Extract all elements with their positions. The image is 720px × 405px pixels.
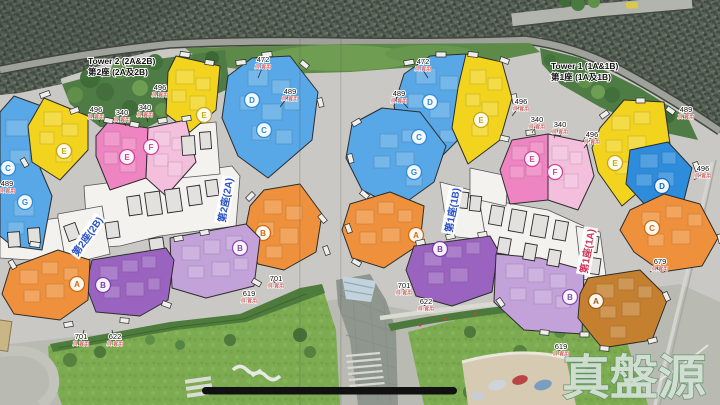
svg-text:呉 實用: 呉 實用 — [678, 114, 694, 121]
svg-text:呉 實用: 呉 實用 — [73, 341, 89, 348]
svg-text:D: D — [427, 98, 433, 107]
svg-text:C: C — [649, 224, 655, 233]
svg-text:呉 實用: 呉 實用 — [513, 106, 529, 113]
svg-text:701: 701 — [398, 281, 411, 290]
svg-text:呉 實用: 呉 實用 — [695, 173, 711, 180]
svg-text:Tower 1 (1A&1B): Tower 1 (1A&1B) — [551, 61, 619, 71]
svg-text:呉 實用: 呉 實用 — [415, 66, 431, 73]
svg-text:Tower 2 (2A&2B): Tower 2 (2A&2B) — [88, 56, 156, 66]
svg-text:619: 619 — [243, 289, 256, 298]
svg-text:E: E — [124, 153, 130, 162]
svg-text:E: E — [478, 116, 484, 125]
svg-text:A: A — [413, 231, 419, 240]
svg-text:622: 622 — [420, 297, 433, 306]
svg-text:496: 496 — [515, 97, 528, 106]
svg-text:496: 496 — [586, 130, 599, 139]
svg-text:呉 實用: 呉 實用 — [107, 341, 123, 348]
svg-text:B: B — [567, 293, 573, 302]
svg-text:D: D — [659, 182, 665, 191]
svg-text:B: B — [437, 245, 443, 254]
svg-text:呉 實用: 呉 實用 — [391, 98, 407, 105]
svg-text:E: E — [201, 111, 207, 120]
svg-text:呉 實用: 呉 實用 — [255, 64, 271, 71]
svg-text:呉 實用: 呉 實用 — [114, 117, 130, 124]
svg-text:496: 496 — [90, 105, 103, 114]
svg-text:B: B — [100, 281, 106, 290]
svg-text:呉 實用: 呉 實用 — [584, 139, 600, 146]
svg-text:G: G — [22, 198, 28, 207]
svg-text:340: 340 — [116, 108, 129, 117]
svg-text:呉 實用: 呉 實用 — [652, 266, 668, 273]
svg-text:496: 496 — [154, 83, 167, 92]
svg-text:呉 實用: 呉 實用 — [268, 283, 284, 290]
svg-text:呉 實用: 呉 實用 — [418, 306, 434, 313]
svg-text:A: A — [593, 297, 599, 306]
svg-text:B: B — [237, 244, 243, 253]
svg-text:第1座 (1A及1B): 第1座 (1A及1B) — [551, 72, 611, 82]
svg-text:C: C — [416, 133, 422, 142]
svg-text:701: 701 — [75, 332, 88, 341]
svg-text:呉 實用: 呉 實用 — [152, 92, 168, 99]
svg-text:A: A — [74, 280, 80, 289]
svg-text:701: 701 — [270, 274, 283, 283]
svg-text:呉 實用: 呉 實用 — [282, 96, 298, 103]
svg-text:496: 496 — [697, 164, 710, 173]
svg-text:呉 實用: 呉 實用 — [137, 112, 153, 119]
svg-text:340: 340 — [554, 120, 567, 129]
svg-text:489: 489 — [1, 179, 14, 188]
svg-text:679: 679 — [654, 257, 667, 266]
svg-text:489: 489 — [284, 87, 297, 96]
svg-text:呉 實用: 呉 實用 — [0, 188, 15, 195]
svg-text:340: 340 — [531, 115, 544, 124]
svg-text:B: B — [260, 229, 266, 238]
svg-text:489: 489 — [393, 89, 406, 98]
svg-text:472: 472 — [257, 55, 270, 64]
svg-text:呉 實用: 呉 實用 — [88, 114, 104, 121]
svg-text:E: E — [529, 155, 535, 164]
svg-text:呉 實用: 呉 實用 — [552, 129, 568, 136]
svg-text:C: C — [261, 126, 267, 135]
svg-text:第2座 (2A及2B): 第2座 (2A及2B) — [88, 67, 148, 77]
svg-text:340: 340 — [139, 103, 152, 112]
svg-text:真盤源: 真盤源 — [562, 352, 706, 405]
svg-text:E: E — [612, 159, 618, 168]
svg-text:F: F — [149, 143, 154, 152]
svg-text:呉 實用: 呉 實用 — [529, 124, 545, 131]
svg-text:619: 619 — [555, 342, 568, 351]
svg-text:呉 實用: 呉 實用 — [396, 290, 412, 297]
svg-text:G: G — [411, 168, 417, 177]
svg-text:C: C — [5, 164, 11, 173]
svg-text:472: 472 — [417, 57, 430, 66]
svg-text:F: F — [553, 168, 558, 177]
svg-text:E: E — [61, 147, 67, 156]
svg-text:622: 622 — [109, 332, 122, 341]
svg-text:489: 489 — [680, 105, 693, 114]
svg-text:D: D — [249, 96, 255, 105]
svg-text:呉 實用: 呉 實用 — [241, 298, 257, 305]
